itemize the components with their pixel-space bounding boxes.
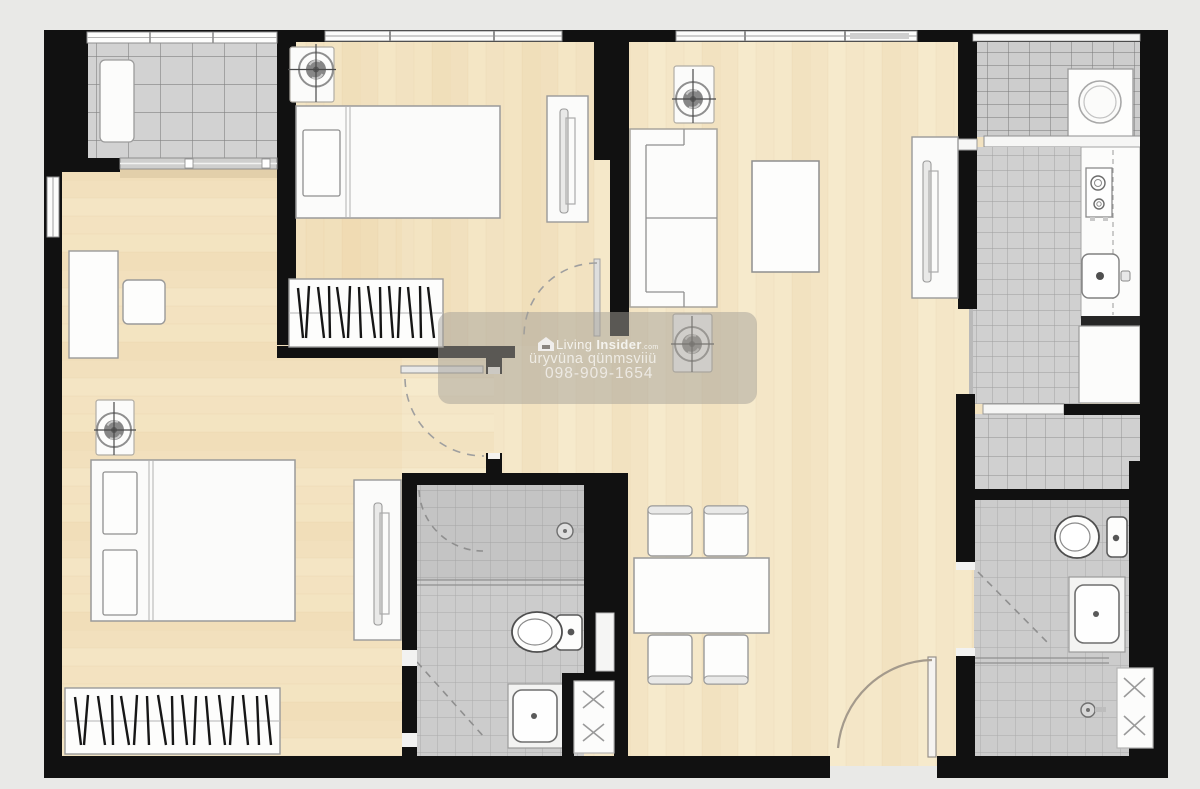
svg-text:098-909-1654: 098-909-1654 (545, 365, 654, 382)
